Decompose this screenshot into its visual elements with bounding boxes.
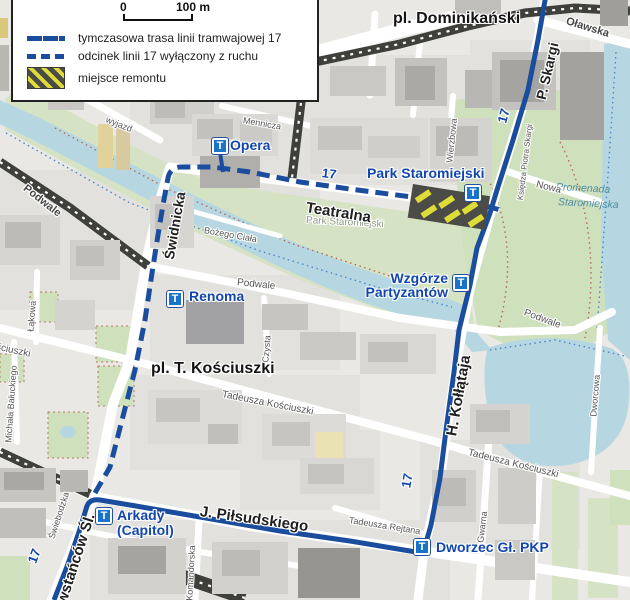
stop-t-glyph: T: [217, 140, 224, 152]
tram-stop-icon-opera: T: [212, 138, 228, 154]
legend-row-temporary-route: tymczasowa trasa linii tramwajowej 17: [27, 31, 281, 45]
place-label-pl-dominikanski: pl. Dominikański: [393, 11, 520, 28]
stop-label-dworzec: Dworzec Gł. PKP: [436, 540, 549, 555]
route-17-badge-teatralna: 17: [321, 166, 337, 182]
stop-label-opera: Opera: [230, 138, 270, 153]
stop-t-glyph: T: [470, 187, 477, 199]
stop-label-arkady-line2: (Capitol): [117, 523, 174, 538]
tram-stop-icon-dworzec: T: [414, 539, 430, 555]
legend-label-temporary-route: tymczasowa trasa linii tramwajowej 17: [78, 31, 281, 45]
stop-t-glyph: T: [458, 277, 465, 289]
legend-label-suspended-section: odcinek linii 17 wyłączony z ruchu: [78, 49, 258, 63]
stop-label-arkady-line1: Arkady: [117, 508, 164, 523]
tram-stop-icon-wzgorze-partyzantow: T: [453, 275, 469, 291]
tram-stop-icon-park-staromiejski: T: [465, 185, 481, 201]
scale-zero-label: 0: [120, 0, 127, 14]
scale-distance-label: 100 m: [176, 0, 210, 14]
stop-t-glyph: T: [101, 510, 108, 522]
stop-label-renoma: Renoma: [189, 289, 244, 304]
legend-row-construction: miejsce remontu: [27, 67, 166, 89]
solid-route-line-sample: [27, 36, 65, 41]
stop-t-glyph: T: [172, 293, 179, 305]
legend-box: 0 100 m tymczasowa trasa linii tramwajow…: [11, 0, 319, 102]
route-17-badge-kollataja: 17: [399, 472, 415, 489]
scale-bar: [123, 14, 193, 21]
place-label-pl-kosciuszki: pl. T. Kościuszki: [151, 361, 275, 378]
tram-stop-icon-renoma: T: [167, 291, 183, 307]
construction-hazard-sample: [27, 67, 65, 89]
dashed-route-line-sample: [27, 54, 65, 59]
legend-label-construction: miejsce remontu: [78, 71, 166, 85]
map-canvas: pl. Dominikański pl. T. Kościuszki Park …: [0, 0, 630, 600]
stop-label-park-staromiejski: Park Staromiejski: [367, 166, 485, 181]
legend-row-suspended-section: odcinek linii 17 wyłączony z ruchu: [27, 49, 258, 63]
stop-t-glyph: T: [419, 541, 426, 553]
stop-label-wzgorze-line2: Partyzantów: [360, 285, 448, 300]
tram-stop-icon-arkady: T: [96, 508, 112, 524]
